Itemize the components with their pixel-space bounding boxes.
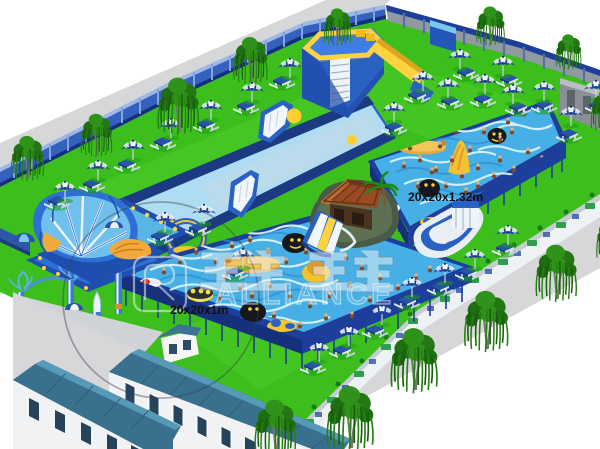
svg-text:20x20x1.32m: 20x20x1.32m [408,190,483,204]
svg-text:ALLIANCE: ALLIANCE [215,278,395,311]
svg-text:20x20x1m: 20x20x1m [170,303,228,317]
